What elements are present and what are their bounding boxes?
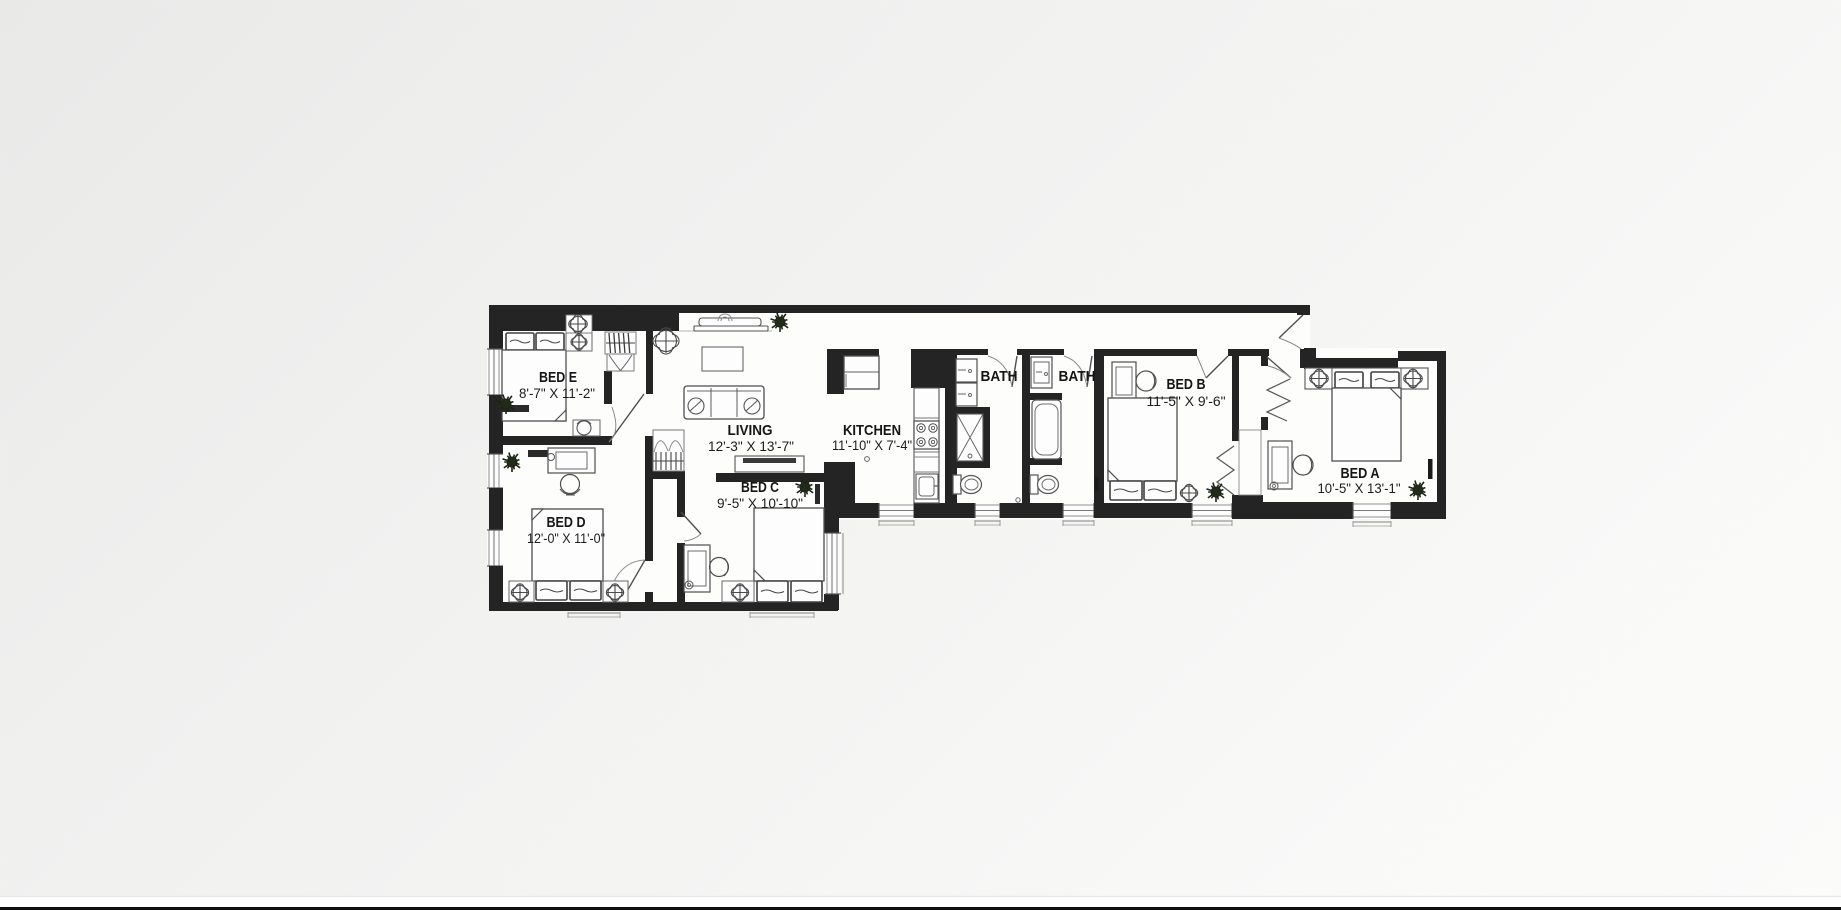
- svg-text:BED D: BED D: [547, 514, 586, 531]
- svg-text:BED E: BED E: [539, 369, 577, 386]
- svg-text:11'-5" X 9'-6": 11'-5" X 9'-6": [1147, 393, 1226, 409]
- svg-text:LIVING: LIVING: [728, 422, 773, 439]
- svg-text:11'-10" X 7'-4": 11'-10" X 7'-4": [832, 437, 912, 453]
- svg-text:8'-7" X 11'-2": 8'-7" X 11'-2": [519, 385, 595, 401]
- svg-text:BED B: BED B: [1167, 376, 1206, 393]
- svg-text:BATH: BATH: [1059, 368, 1096, 385]
- svg-text:12'-3" X 13'-7": 12'-3" X 13'-7": [708, 438, 794, 454]
- svg-text:12'-0" X 11'-0": 12'-0" X 11'-0": [527, 530, 605, 546]
- svg-text:10'-5" X 13'-1": 10'-5" X 13'-1": [1318, 480, 1401, 496]
- svg-text:9'-5" X 10'-10": 9'-5" X 10'-10": [717, 495, 803, 511]
- svg-text:BATH: BATH: [981, 368, 1018, 385]
- svg-text:BED C: BED C: [741, 479, 779, 496]
